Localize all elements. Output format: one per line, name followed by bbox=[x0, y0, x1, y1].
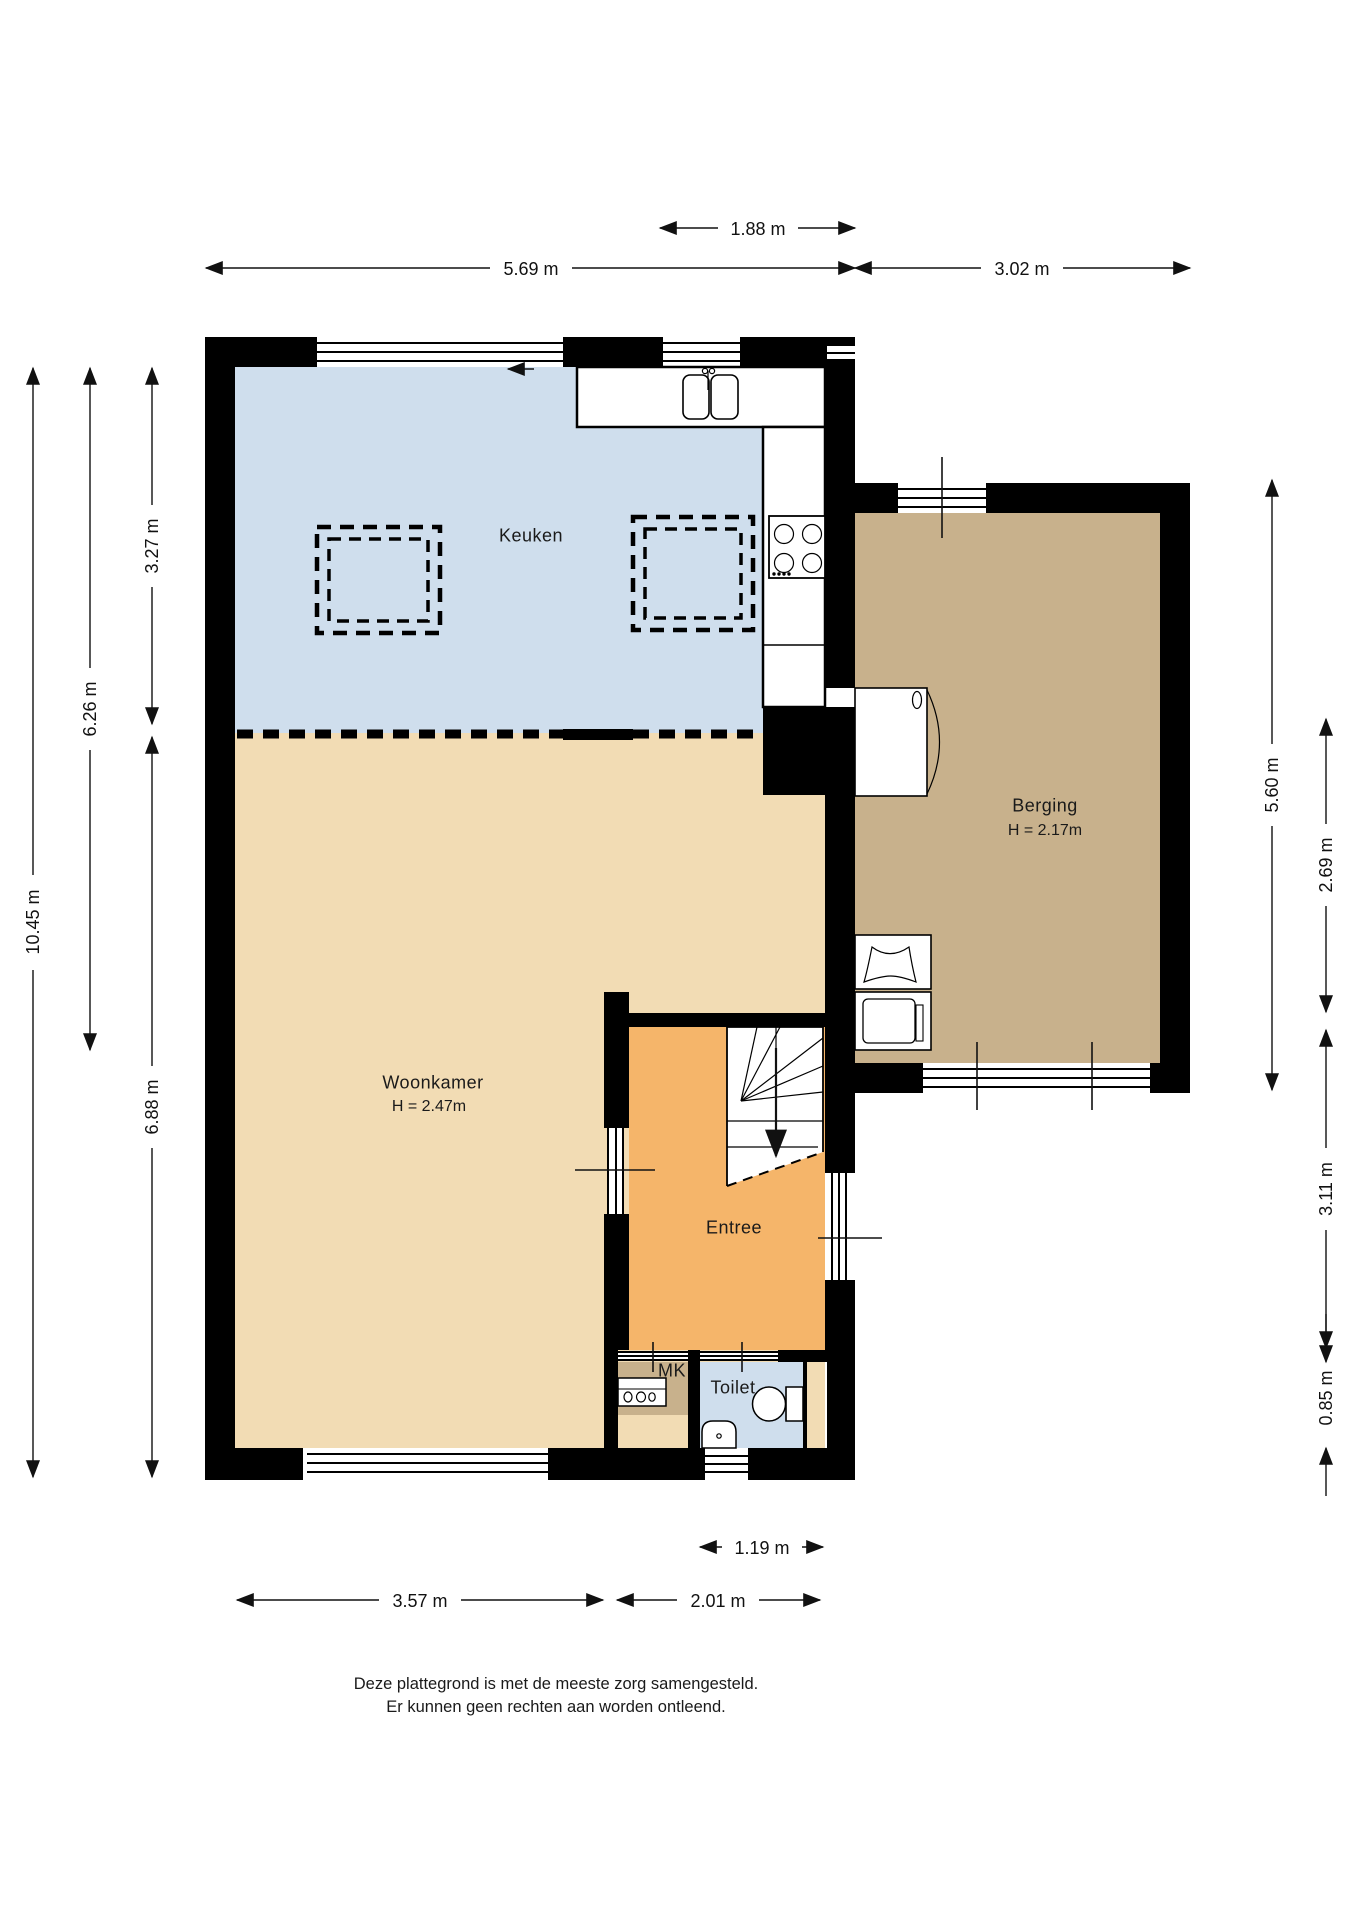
meter-cabinet-icon bbox=[618, 1378, 666, 1406]
disclaimer-line-2: Er kunnen geen rechten aan worden ontlee… bbox=[354, 1696, 758, 1719]
room-label-mk: MK bbox=[658, 1361, 686, 1382]
disclaimer: Deze plattegrond is met de meeste zorg s… bbox=[354, 1673, 758, 1719]
stairs bbox=[727, 1027, 823, 1186]
svg-text:6.26 m: 6.26 m bbox=[80, 681, 100, 736]
dimension-left-living: 6.88 m bbox=[139, 737, 165, 1477]
svg-text:2.01 m: 2.01 m bbox=[690, 1591, 745, 1611]
dimension-bottom-left: 3.57 m bbox=[237, 1587, 603, 1613]
stove-icon bbox=[769, 516, 825, 578]
dimension-right-toilet: 0.85 m bbox=[1316, 1314, 1336, 1496]
room-height-woonkamer: H = 2.47m bbox=[392, 1098, 466, 1116]
dimension-bottom-toilet: 1.19 m bbox=[700, 1534, 823, 1560]
ventilation-unit-icon bbox=[855, 935, 931, 989]
floorplan-linework: 1.88 m 5.69 m 3.02 m 1.19 m 3.57 m 2.01 … bbox=[0, 0, 1358, 1920]
svg-text:2.69 m: 2.69 m bbox=[1316, 837, 1336, 892]
svg-text:0.85 m: 0.85 m bbox=[1316, 1370, 1336, 1425]
room-label-berging: Berging bbox=[1012, 796, 1078, 817]
door-swing-icon bbox=[855, 688, 940, 796]
room-label-toilet: Toilet bbox=[710, 1378, 755, 1399]
svg-text:5.60 m: 5.60 m bbox=[1262, 757, 1282, 812]
svg-text:6.88 m: 6.88 m bbox=[142, 1079, 162, 1134]
dimension-left-total: 10.45 m bbox=[20, 368, 46, 1477]
section-ticks bbox=[575, 457, 1092, 1372]
svg-text:3.57 m: 3.57 m bbox=[392, 1591, 447, 1611]
dimension-right-storage: 5.60 m bbox=[1259, 480, 1285, 1090]
room-label-entree: Entree bbox=[706, 1218, 762, 1239]
dimension-left-kitchen: 3.27 m bbox=[139, 368, 165, 724]
svg-text:1.19 m: 1.19 m bbox=[734, 1538, 789, 1558]
toilet-icon bbox=[753, 1387, 804, 1421]
svg-text:10.45 m: 10.45 m bbox=[23, 889, 43, 954]
room-label-woonkamer: Woonkamer bbox=[382, 1073, 483, 1094]
dimension-right-storage-inner: 2.69 m bbox=[1313, 719, 1339, 1012]
dimension-top-right: 3.02 m bbox=[855, 255, 1190, 281]
dimension-right-entry: 3.11 m bbox=[1313, 1030, 1339, 1348]
disclaimer-line-1: Deze plattegrond is met de meeste zorg s… bbox=[354, 1673, 758, 1696]
dimension-left-upper: 6.26 m bbox=[77, 368, 103, 1050]
svg-text:3.02 m: 3.02 m bbox=[994, 259, 1049, 279]
dimension-top-inner: 1.88 m bbox=[660, 215, 855, 241]
svg-text:3.27 m: 3.27 m bbox=[142, 518, 162, 573]
washer-icon bbox=[855, 992, 931, 1050]
room-height-berging: H = 2.17m bbox=[1008, 822, 1082, 840]
room-label-keuken: Keuken bbox=[499, 526, 563, 547]
svg-text:5.69 m: 5.69 m bbox=[503, 259, 558, 279]
hand-basin-icon bbox=[702, 1421, 736, 1448]
svg-text:3.11 m: 3.11 m bbox=[1316, 1162, 1336, 1216]
floorplan-canvas: 1.88 m 5.69 m 3.02 m 1.19 m 3.57 m 2.01 … bbox=[0, 0, 1358, 1920]
dimension-bottom-right: 2.01 m bbox=[617, 1587, 820, 1613]
dimension-top-left: 5.69 m bbox=[206, 255, 855, 281]
svg-text:1.88 m: 1.88 m bbox=[730, 219, 785, 239]
